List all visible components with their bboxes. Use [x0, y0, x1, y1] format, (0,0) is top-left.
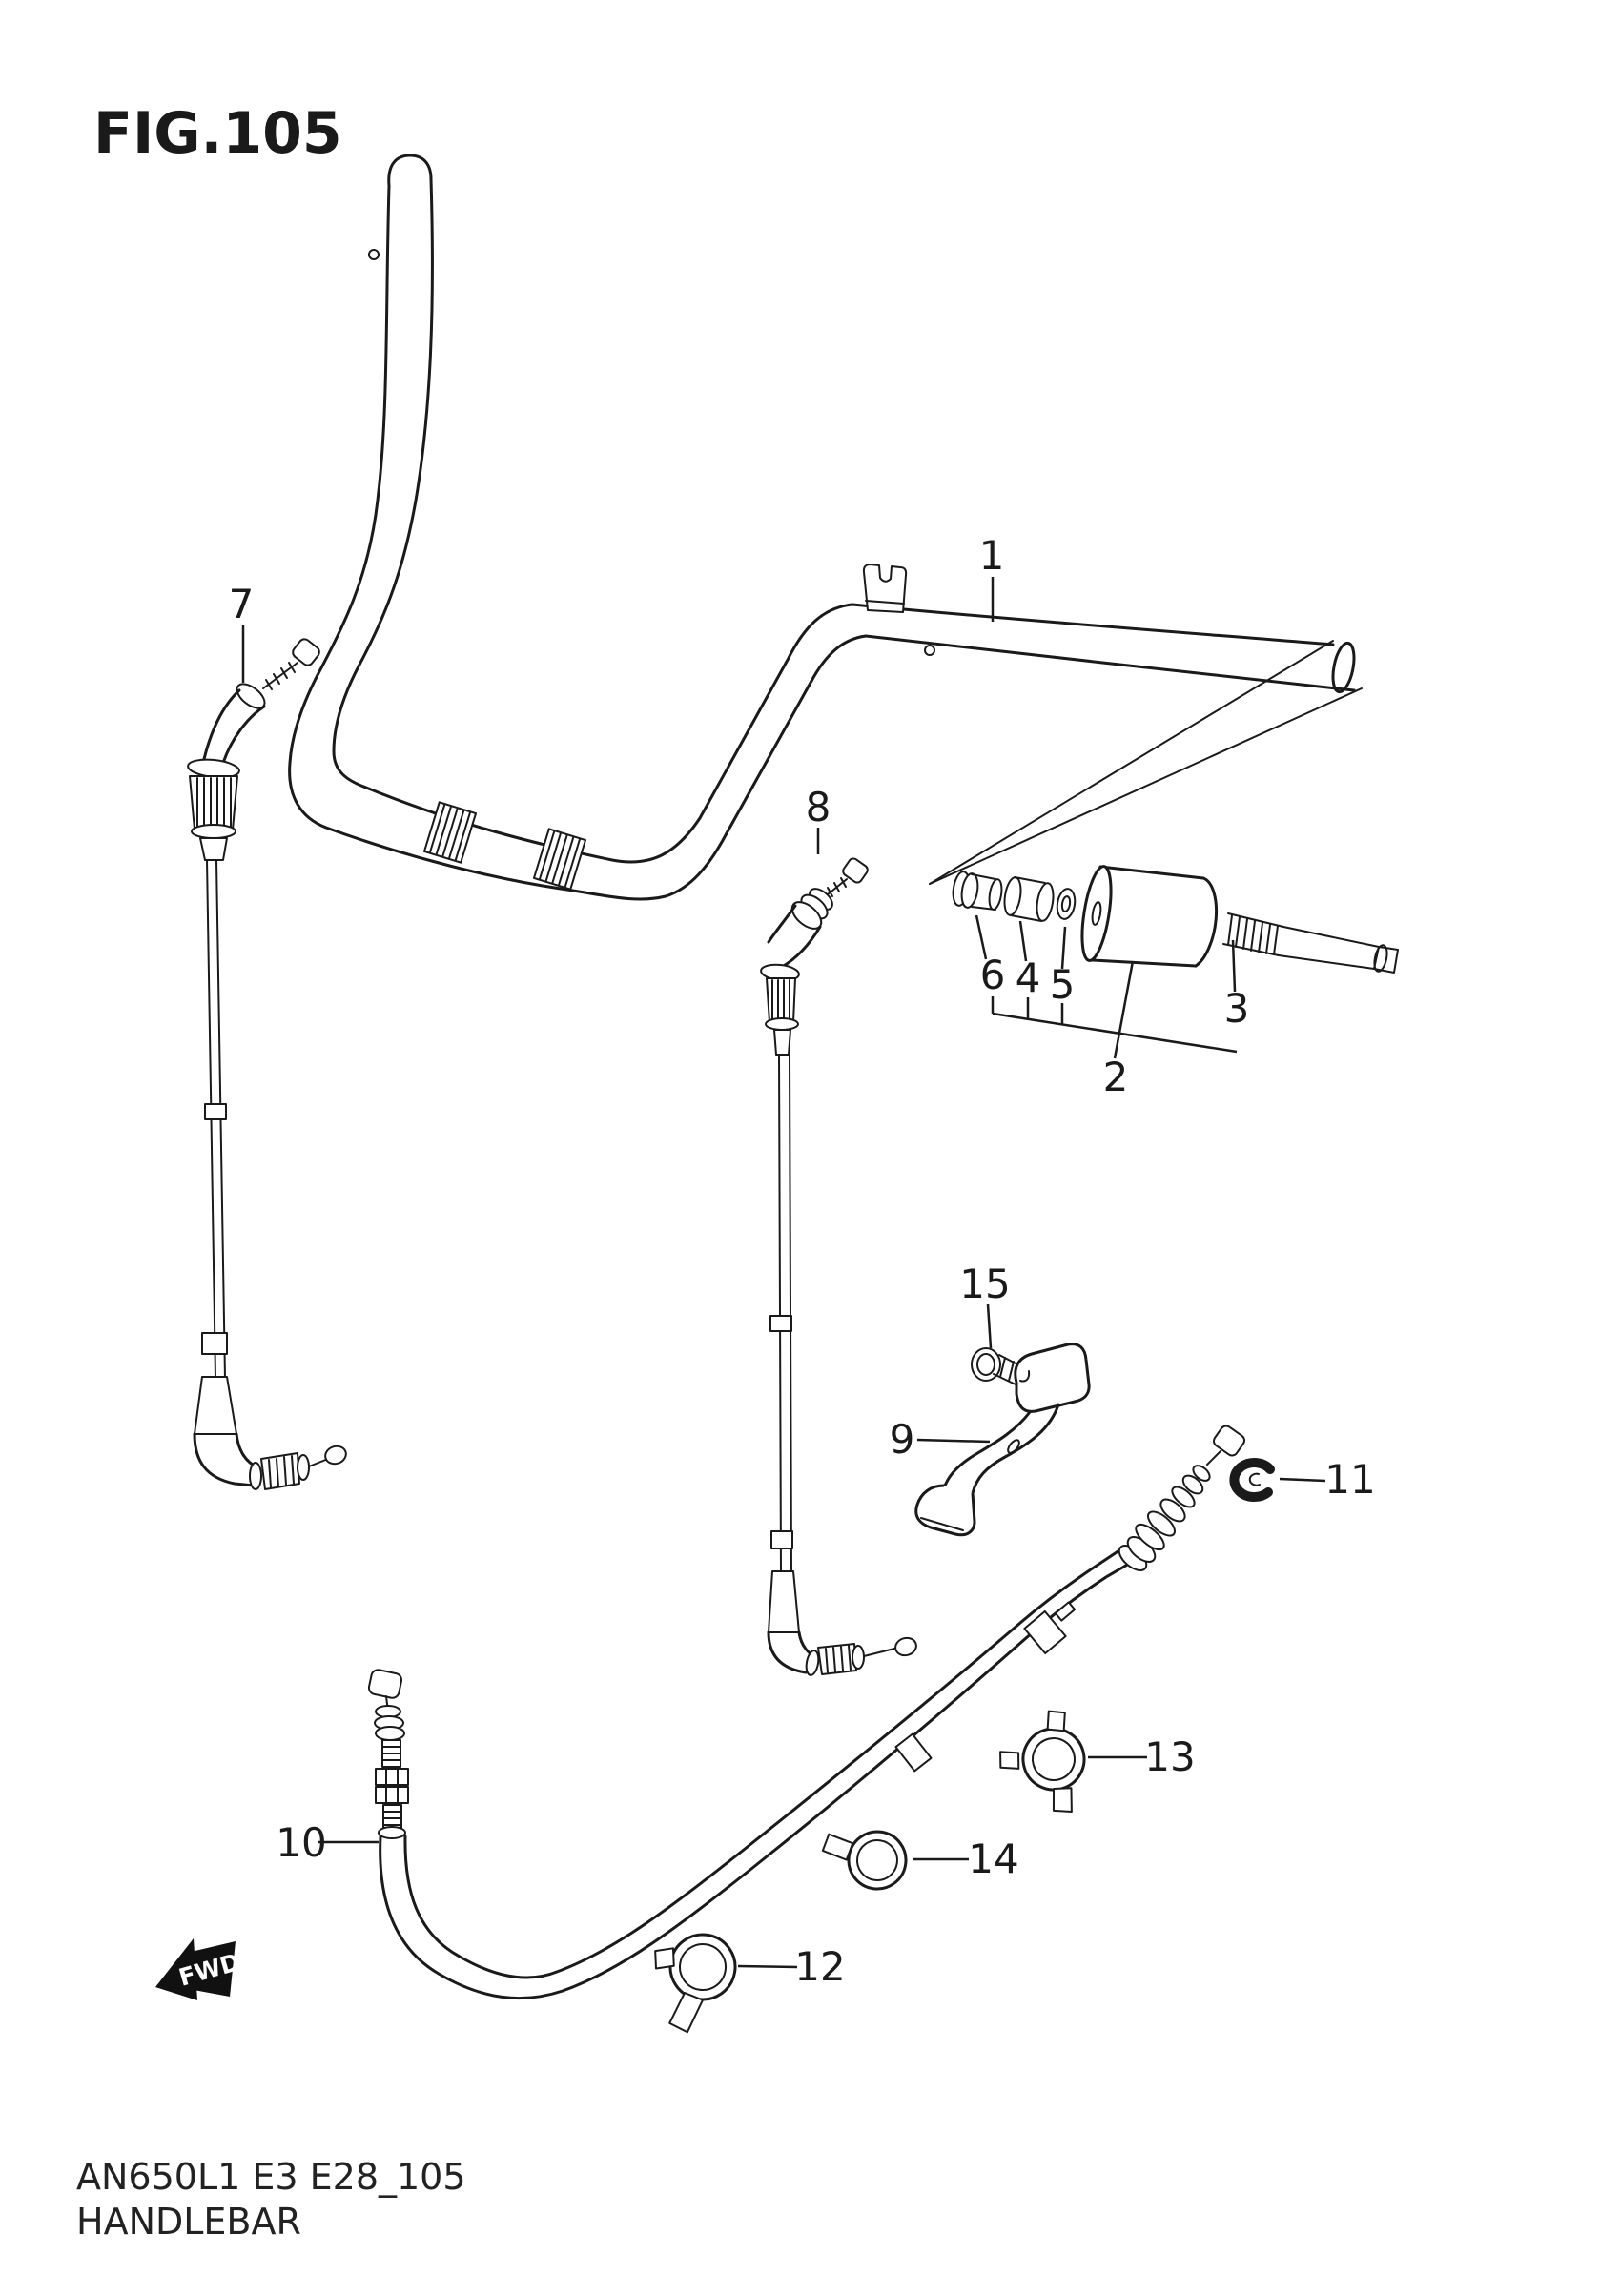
cable-clamp-tab: [1056, 1602, 1075, 1620]
callout-10: 10: [276, 1819, 326, 1866]
fwd-arrow: FWD: [155, 1938, 243, 2000]
callout-7: 7: [229, 581, 255, 627]
callout-15: 15: [959, 1261, 1010, 1307]
pointer-line: [930, 688, 1362, 884]
weight-washer: [1056, 888, 1077, 920]
cable-clamp-13: [990, 1705, 1098, 1826]
cable-adjuster-knurl: [766, 978, 798, 1055]
footer-title: HANDLEBAR: [76, 2201, 301, 2243]
cable-clamp-14: [818, 1824, 909, 1893]
cable-adjuster-knurl: [261, 1453, 309, 1489]
cable-sleeve-joint: [202, 1333, 227, 1354]
cable-sleeve-joint: [771, 1531, 792, 1548]
tube-hole: [369, 250, 379, 259]
cable-end-barrel: [368, 1669, 403, 1699]
cable-sleeve-joint: [205, 1104, 226, 1119]
cable-end-barrel: [893, 1635, 918, 1657]
figure-title: FIG.105: [93, 100, 342, 167]
callout-1: 1: [979, 532, 1005, 579]
leader-line: [993, 1014, 1237, 1052]
footer-code: AN650L1 E3 E28_105: [76, 2156, 466, 2198]
callout-8: 8: [806, 784, 831, 830]
cable-adjuster-knurl: [190, 776, 237, 860]
clutch-cable: [368, 1424, 1247, 1998]
e-clip: [1234, 1463, 1270, 1497]
leader-line: [1280, 1479, 1325, 1481]
leader-line: [738, 1966, 797, 1967]
cable-end-barrel: [1212, 1424, 1247, 1458]
callout-11: 11: [1324, 1456, 1375, 1503]
cable-sleeve-joint: [895, 1734, 931, 1772]
handlebar-figure: 1 2 3 4 5 6 7 8 9 10 11 12 13 14 15 FWD …: [0, 0, 1621, 2296]
bar-end-weight: [1077, 865, 1216, 966]
cable-end-barrel: [323, 1444, 348, 1466]
handlebar-open-end: [1329, 642, 1358, 694]
end-weight-assembly: [930, 641, 1398, 973]
bracket-slot: [1006, 1438, 1021, 1455]
throttle-cable-right: [760, 856, 918, 1675]
cable-adjuster-knurl: [818, 1644, 864, 1674]
cable-end-barrel: [291, 637, 321, 667]
throttle-cable-left: [187, 637, 348, 1489]
leader-line: [988, 1304, 991, 1348]
pointer-line: [930, 641, 1333, 884]
cable-sleeve-joint: [770, 1316, 791, 1331]
weight-nut: [951, 871, 1003, 911]
weight-bolt: [1223, 913, 1398, 973]
callout-6: 6: [980, 952, 1006, 998]
callout-4: 4: [1016, 954, 1041, 1001]
callout-2: 2: [1103, 1054, 1129, 1100]
callout-14: 14: [968, 1835, 1018, 1882]
leader-line: [917, 1440, 990, 1442]
cable-clamp-12: [643, 1926, 741, 2038]
handlebar-end-cap: [389, 155, 431, 186]
leader-line: [1233, 940, 1235, 992]
leader-line: [1115, 961, 1133, 1058]
handlebar-tab: [864, 564, 906, 612]
callout-13: 13: [1144, 1733, 1195, 1780]
callout-3: 3: [1224, 985, 1250, 1032]
callout-9: 9: [890, 1416, 915, 1463]
cable-boot: [1132, 1463, 1212, 1554]
tube-hole: [925, 646, 934, 655]
adjuster-locknut: [376, 1769, 408, 1803]
callout-5: 5: [1050, 961, 1076, 1008]
callout-12: 12: [794, 1943, 845, 1990]
parts-diagram-page: 1 2 3 4 5 6 7 8 9 10 11 12 13 14 15 FWD …: [0, 0, 1621, 2296]
knurl-band: [534, 829, 585, 889]
adjuster-thread: [382, 1740, 400, 1767]
weight-spacer: [1002, 876, 1056, 922]
